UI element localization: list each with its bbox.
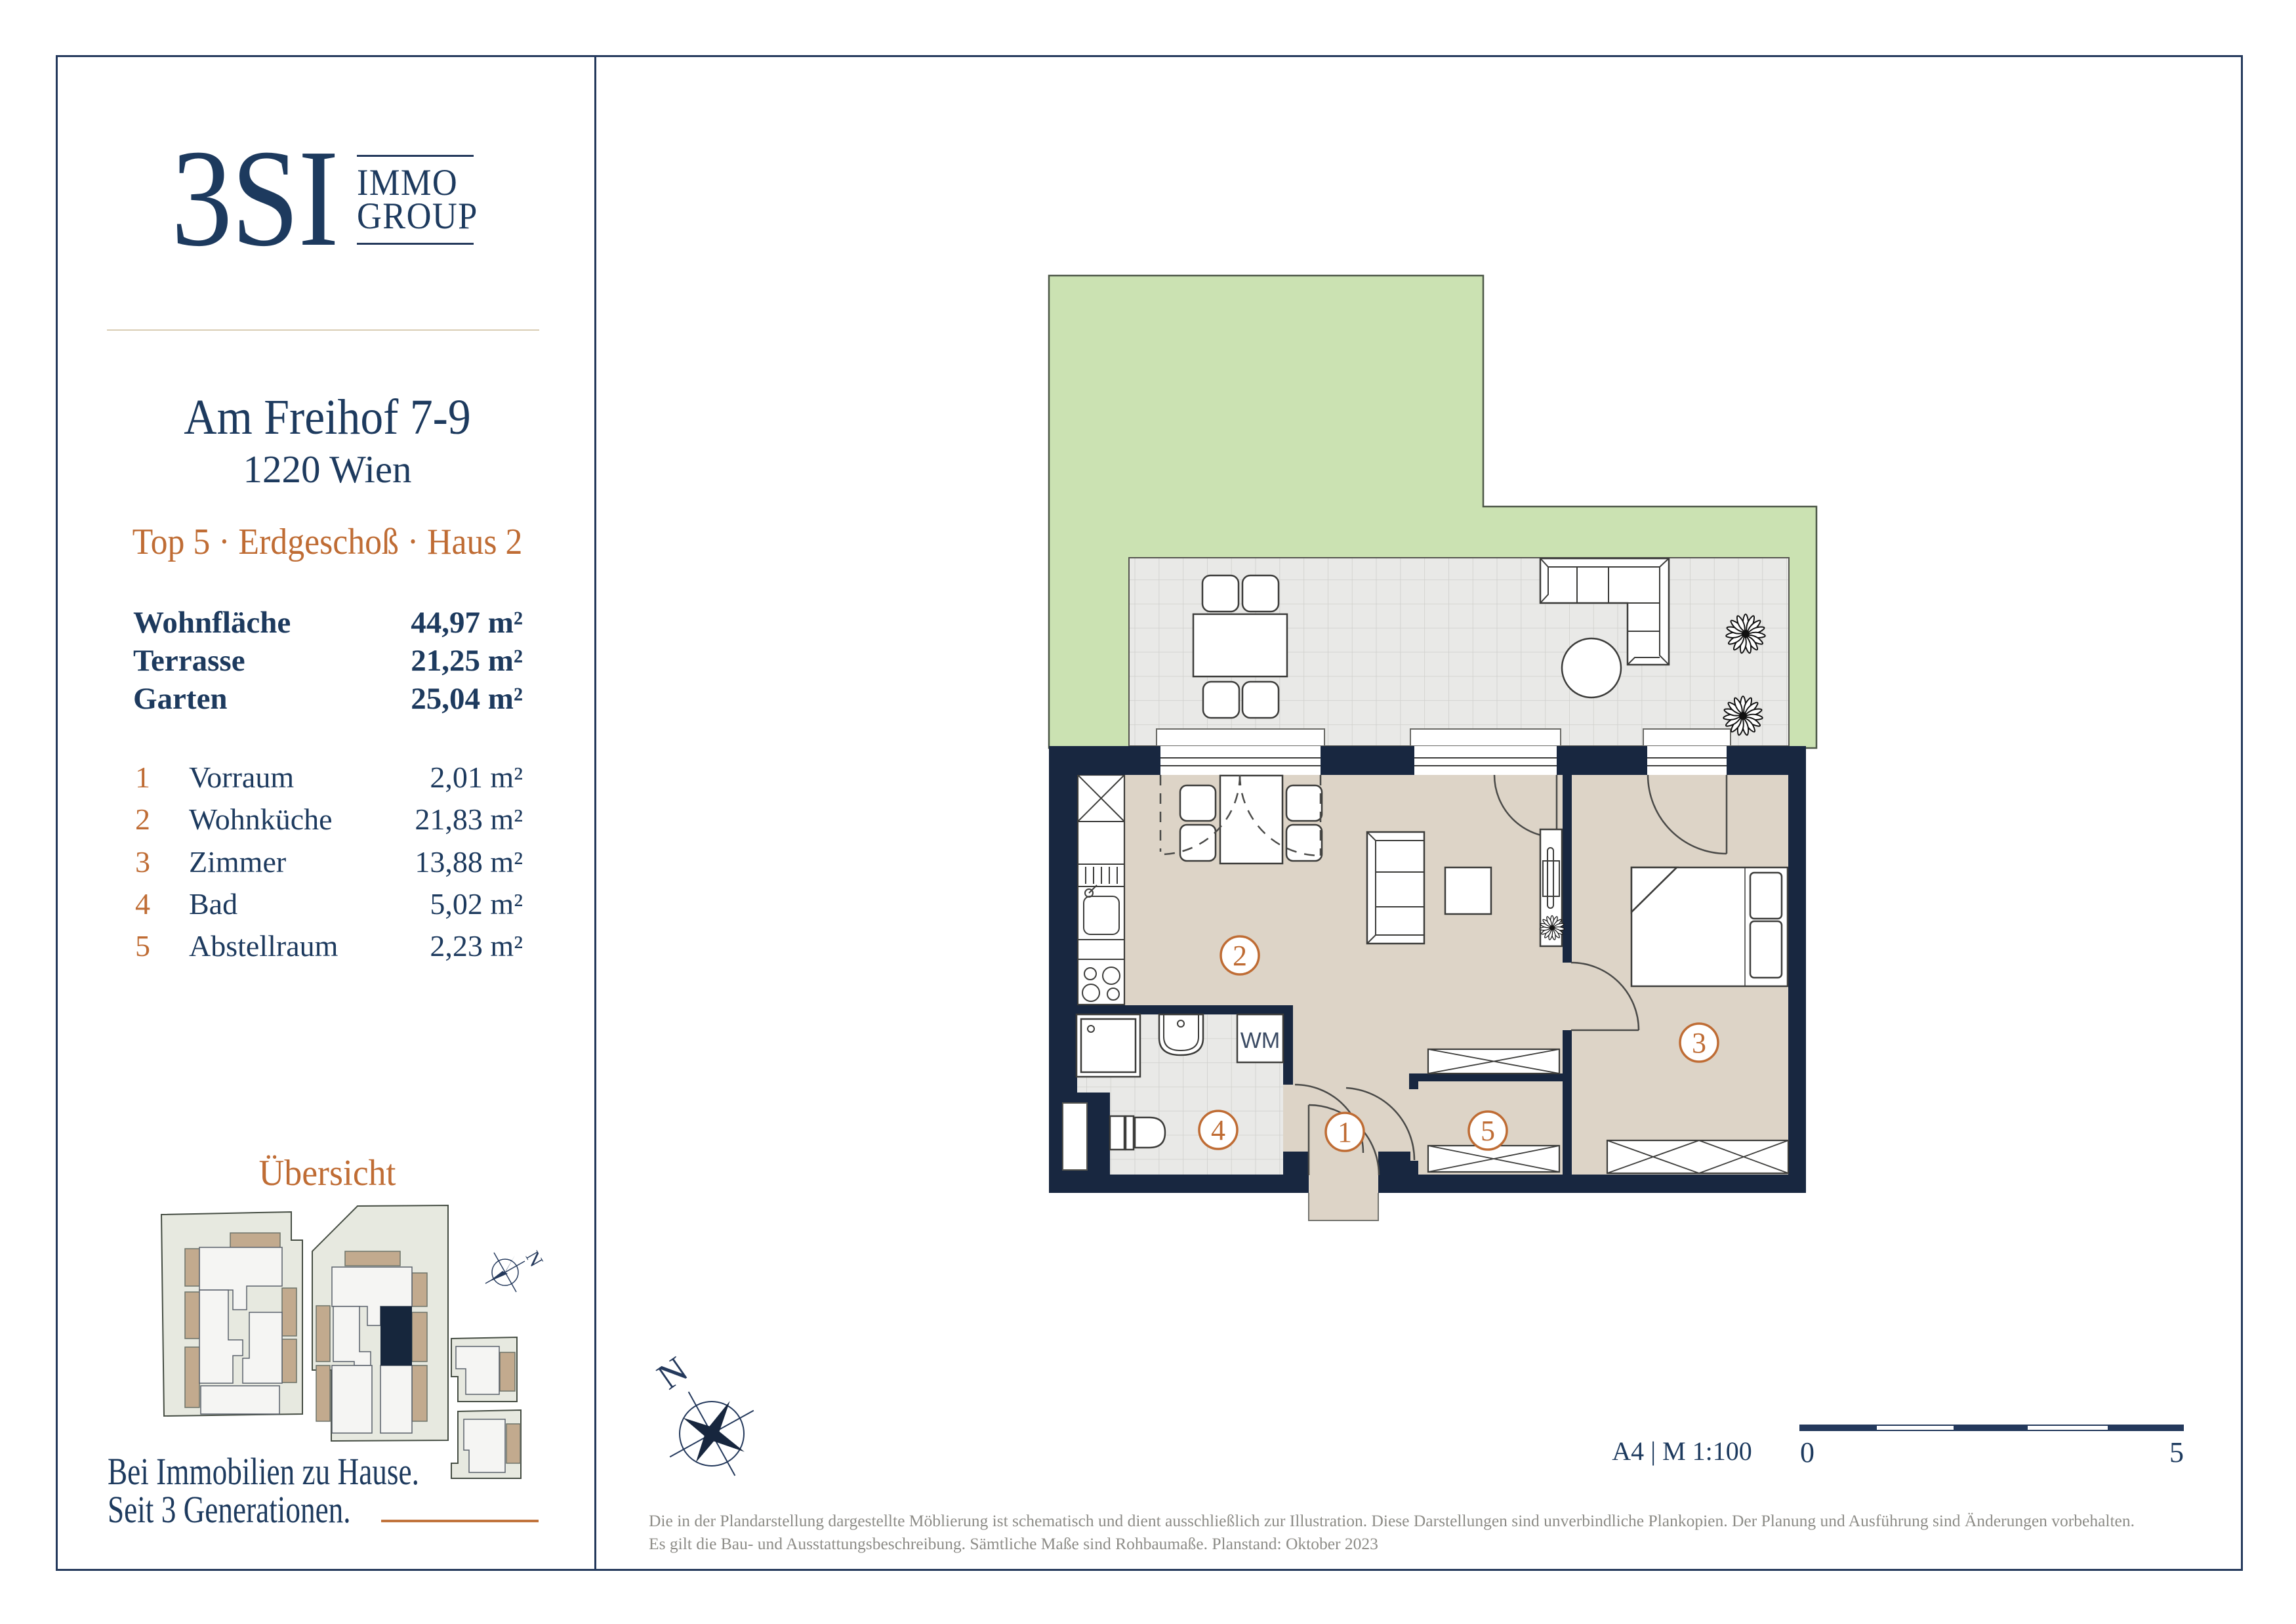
svg-text:3: 3 [1692, 1027, 1706, 1059]
svg-text:5: 5 [1481, 1115, 1495, 1147]
svg-text:N: N [650, 1352, 695, 1398]
svg-text:1: 1 [1338, 1116, 1352, 1148]
svg-text:WM: WM [1240, 1028, 1280, 1053]
svg-text:4: 4 [1211, 1114, 1225, 1146]
svg-text:N: N [522, 1247, 547, 1270]
svg-text:2: 2 [1233, 940, 1247, 972]
